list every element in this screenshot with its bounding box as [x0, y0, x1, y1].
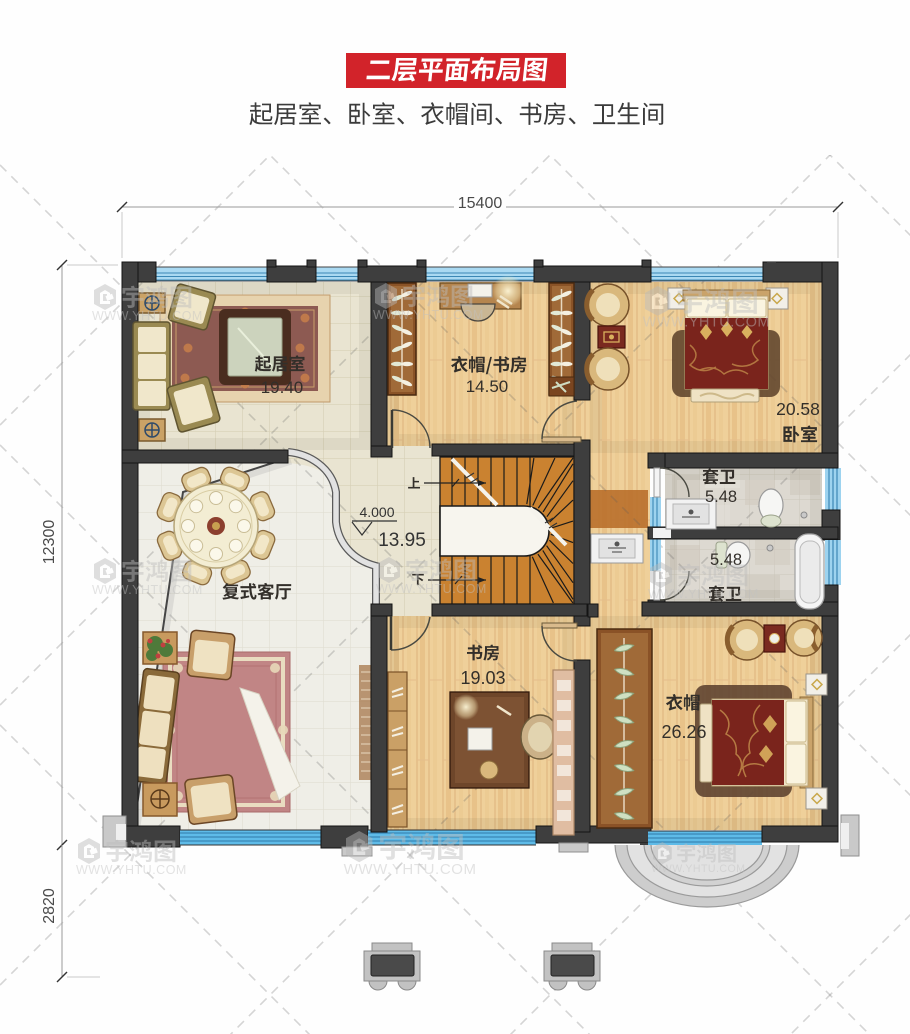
svg-text:WWW.YHTU.COM: WWW.YHTU.COM: [643, 315, 770, 331]
svg-text:15400: 15400: [458, 195, 503, 212]
svg-text:20.58: 20.58: [776, 399, 820, 419]
svg-text:5.48: 5.48: [705, 488, 737, 506]
svg-text:WWW.YHTU.COM: WWW.YHTU.COM: [376, 582, 487, 596]
svg-text:WWW.YHTU.COM: WWW.YHTU.COM: [344, 861, 477, 878]
svg-text:13.95: 13.95: [378, 530, 426, 551]
svg-text:19.40: 19.40: [261, 378, 304, 397]
svg-text:WWW.YHTU.COM: WWW.YHTU.COM: [648, 587, 759, 601]
svg-text:12300: 12300: [41, 520, 58, 565]
svg-text:26.26: 26.26: [661, 722, 706, 742]
svg-text:2820: 2820: [41, 888, 58, 924]
svg-text:WWW.YHTU.COM: WWW.YHTU.COM: [92, 309, 203, 323]
svg-text:14.50: 14.50: [466, 377, 509, 396]
svg-text:WWW.YHTU.COM: WWW.YHTU.COM: [651, 863, 745, 875]
svg-text:WWW.YHTU.COM: WWW.YHTU.COM: [92, 583, 203, 597]
svg-text:WWW.YHTU.COM: WWW.YHTU.COM: [76, 863, 187, 877]
svg-text:19.03: 19.03: [460, 668, 505, 688]
svg-text:4.000: 4.000: [359, 504, 394, 520]
svg-text:WWW.YHTU.COM: WWW.YHTU.COM: [373, 308, 484, 322]
